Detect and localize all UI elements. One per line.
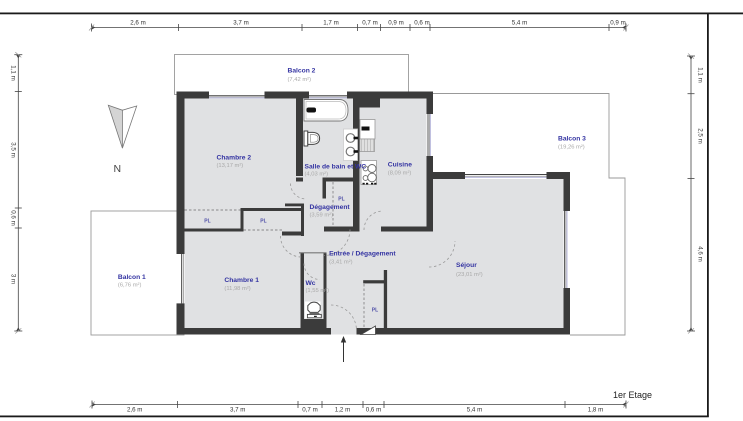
svg-text:Balcon 2: Balcon 2: [288, 68, 316, 75]
svg-text:2,5 m: 2,5 m: [697, 128, 704, 143]
svg-text:2,6 m: 2,6 m: [130, 20, 145, 27]
svg-text:Entrée / Dégagement: Entrée / Dégagement: [329, 251, 396, 258]
svg-text:1,1 m: 1,1 m: [697, 67, 704, 82]
svg-text:(1,55 m²): (1,55 m²): [306, 288, 330, 294]
svg-text:3,7 m: 3,7 m: [233, 20, 248, 27]
svg-text:Balcon 1: Balcon 1: [118, 274, 146, 281]
svg-text:1,8 m: 1,8 m: [588, 407, 603, 414]
svg-text:(3,41 m²): (3,41 m²): [329, 260, 353, 266]
svg-text:(6,76 m²): (6,76 m²): [118, 283, 142, 289]
svg-text:(11,98 m²): (11,98 m²): [224, 286, 250, 292]
svg-text:Salle de bain et WC: Salle de bain et WC: [305, 163, 367, 170]
svg-text:0,9 m: 0,9 m: [388, 20, 403, 27]
svg-text:Chambre 2: Chambre 2: [217, 154, 252, 161]
svg-text:0,6 m: 0,6 m: [366, 407, 381, 414]
svg-text:1,2 m: 1,2 m: [335, 407, 350, 414]
svg-text:Dégagement: Dégagement: [310, 204, 351, 211]
svg-text:Balcon 3: Balcon 3: [558, 136, 586, 143]
svg-text:PL: PL: [260, 219, 266, 225]
svg-text:Séjour: Séjour: [456, 262, 477, 269]
svg-text:(7,42 m²): (7,42 m²): [288, 77, 312, 83]
svg-text:0,7 m: 0,7 m: [362, 20, 377, 27]
svg-text:5,4 m: 5,4 m: [512, 20, 527, 27]
svg-text:3 m: 3 m: [10, 274, 17, 284]
svg-text:Chambre 1: Chambre 1: [224, 277, 259, 284]
svg-text:0,6 m: 0,6 m: [414, 20, 429, 27]
svg-text:2,6 m: 2,6 m: [127, 407, 142, 414]
svg-text:1er Etage: 1er Etage: [613, 390, 652, 400]
svg-text:PL: PL: [372, 308, 378, 314]
svg-text:(8,09 m²): (8,09 m²): [388, 170, 412, 176]
svg-text:3,7 m: 3,7 m: [230, 407, 245, 414]
svg-text:PL: PL: [204, 219, 210, 225]
svg-text:(23,01 m²): (23,01 m²): [456, 272, 483, 278]
svg-text:N: N: [114, 163, 122, 175]
svg-text:(13,17 m²): (13,17 m²): [217, 163, 244, 169]
svg-text:0,7 m: 0,7 m: [302, 407, 317, 414]
svg-text:PL: PL: [338, 197, 344, 203]
svg-text:(19,26 m²): (19,26 m²): [558, 145, 585, 151]
svg-text:Cuisine: Cuisine: [388, 161, 412, 168]
svg-text:4,6 m: 4,6 m: [697, 246, 704, 261]
svg-text:1,7 m: 1,7 m: [323, 20, 338, 27]
svg-text:Wc: Wc: [306, 280, 316, 287]
svg-text:(3,59 m²): (3,59 m²): [310, 213, 334, 219]
svg-text:5,4 m: 5,4 m: [467, 407, 482, 414]
svg-text:0,9 m: 0,9 m: [610, 20, 625, 27]
svg-text:0,6 m: 0,6 m: [10, 210, 17, 225]
svg-text:(4,03 m²): (4,03 m²): [305, 171, 329, 177]
svg-text:3,5 m: 3,5 m: [10, 142, 17, 157]
svg-text:1,1 m: 1,1 m: [10, 65, 17, 80]
